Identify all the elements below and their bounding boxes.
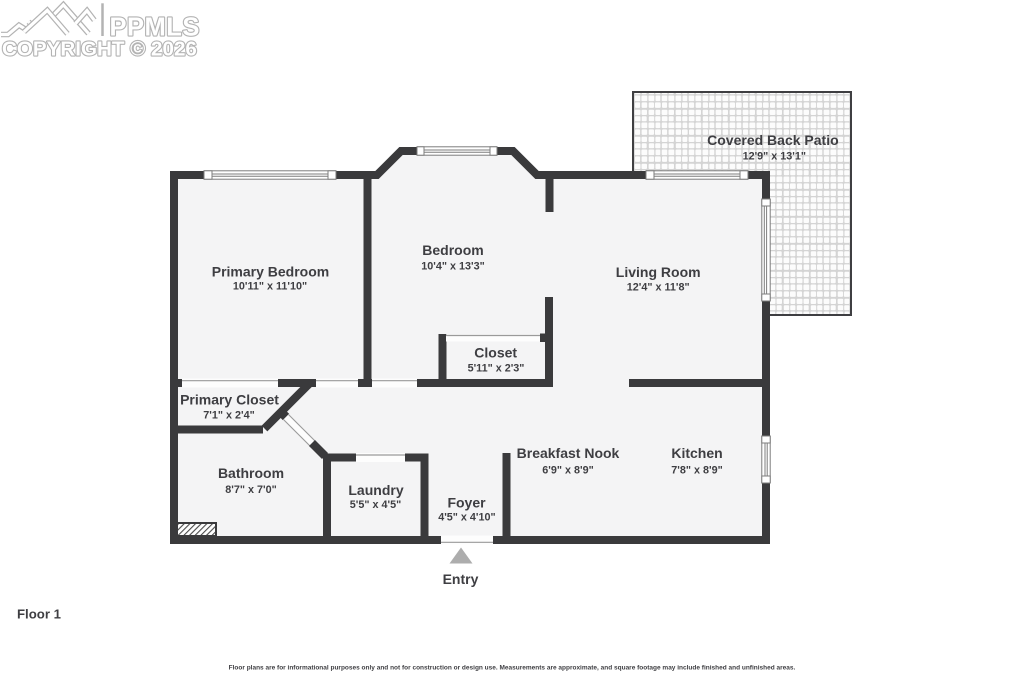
svg-text:12'9" x 13'1": 12'9" x 13'1": [743, 150, 806, 162]
svg-text:4'5" x 4'10": 4'5" x 4'10": [438, 512, 495, 524]
svg-text:Primary Bedroom: Primary Bedroom: [212, 264, 329, 280]
svg-text:8'7" x 7'0": 8'7" x 7'0": [225, 484, 276, 496]
svg-text:Closet: Closet: [474, 345, 517, 361]
svg-text:Floor plans are for informatio: Floor plans are for informational purpos…: [229, 665, 796, 672]
svg-text:10'4" x 13'3": 10'4" x 13'3": [421, 261, 484, 273]
svg-text:Bathroom: Bathroom: [218, 465, 284, 481]
svg-text:Floor 1: Floor 1: [17, 606, 61, 621]
svg-text:12'4" x 11'8": 12'4" x 11'8": [627, 282, 690, 294]
svg-text:Breakfast Nook: Breakfast Nook: [517, 445, 620, 461]
svg-text:Bedroom: Bedroom: [422, 242, 483, 258]
svg-text:5'5" x 4'5": 5'5" x 4'5": [350, 499, 401, 511]
svg-text:Laundry: Laundry: [348, 482, 403, 498]
svg-text:Entry: Entry: [443, 571, 479, 587]
svg-text:7'1" x 2'4": 7'1" x 2'4": [203, 410, 254, 422]
svg-text:Foyer: Foyer: [447, 494, 486, 510]
svg-text:10'11" x 11'10": 10'11" x 11'10": [233, 281, 307, 293]
svg-text:6'9" x 8'9": 6'9" x 8'9": [542, 465, 593, 477]
svg-text:COPYRIGHT © 2026: COPYRIGHT © 2026: [2, 38, 197, 61]
svg-text:Primary Closet: Primary Closet: [180, 392, 279, 408]
svg-text:7'8" x 8'9": 7'8" x 8'9": [671, 465, 722, 477]
svg-text:Living Room: Living Room: [616, 264, 701, 280]
svg-text:Kitchen: Kitchen: [671, 445, 722, 461]
svg-text:Covered Back Patio: Covered Back Patio: [707, 132, 839, 148]
svg-text:5'11" x 2'3": 5'11" x 2'3": [468, 363, 525, 375]
